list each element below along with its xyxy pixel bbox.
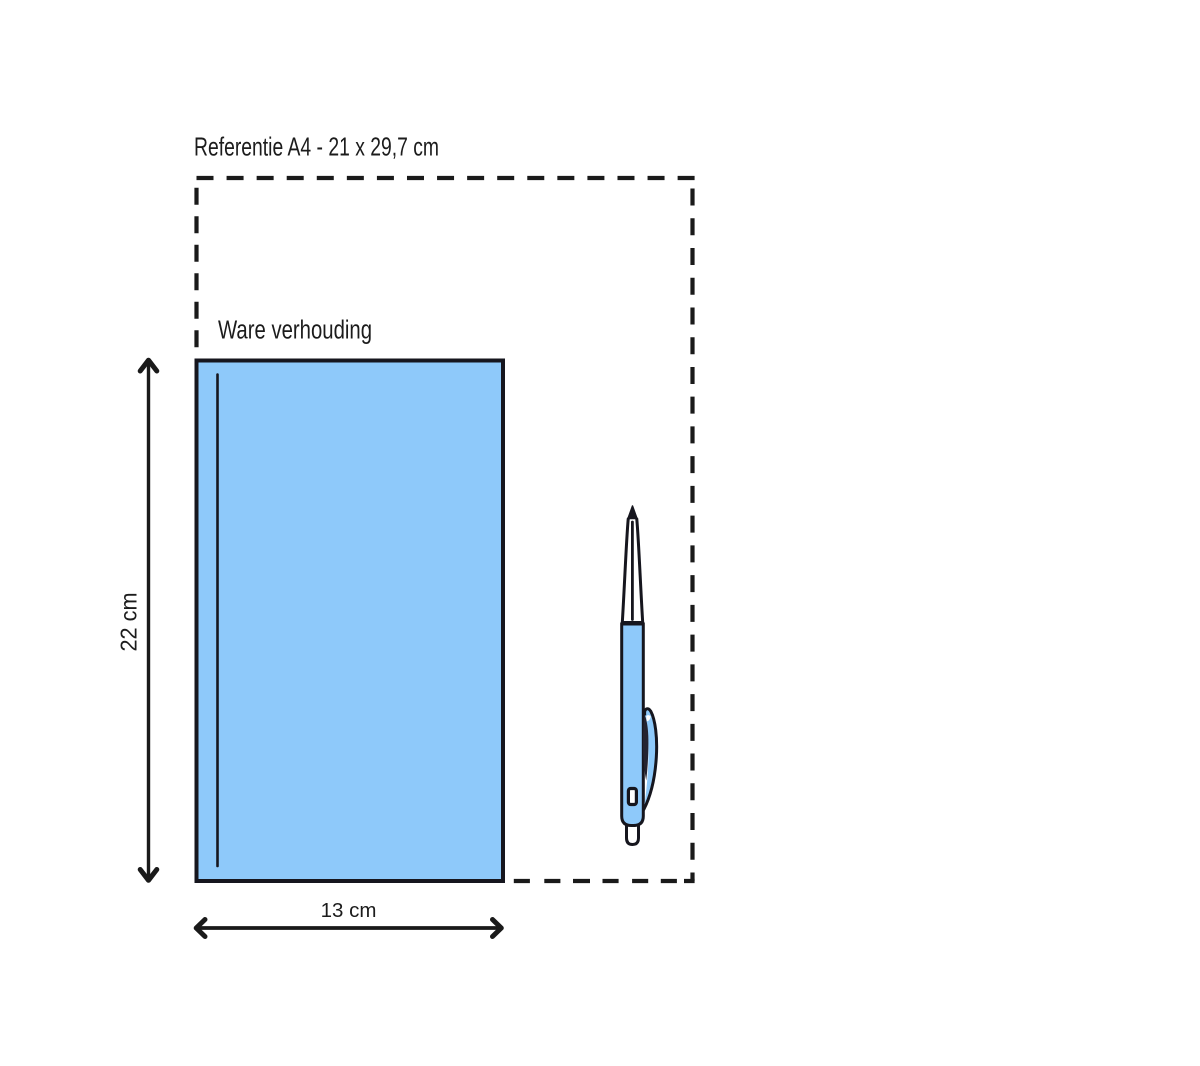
svg-text:Ware verhouding: Ware verhouding bbox=[218, 317, 372, 345]
svg-text:22 cm: 22 cm bbox=[116, 593, 142, 652]
svg-text:Referentie A4 - 21 x 29,7 cm: Referentie A4 - 21 x 29,7 cm bbox=[194, 132, 439, 162]
svg-text:13 cm: 13 cm bbox=[321, 899, 377, 922]
